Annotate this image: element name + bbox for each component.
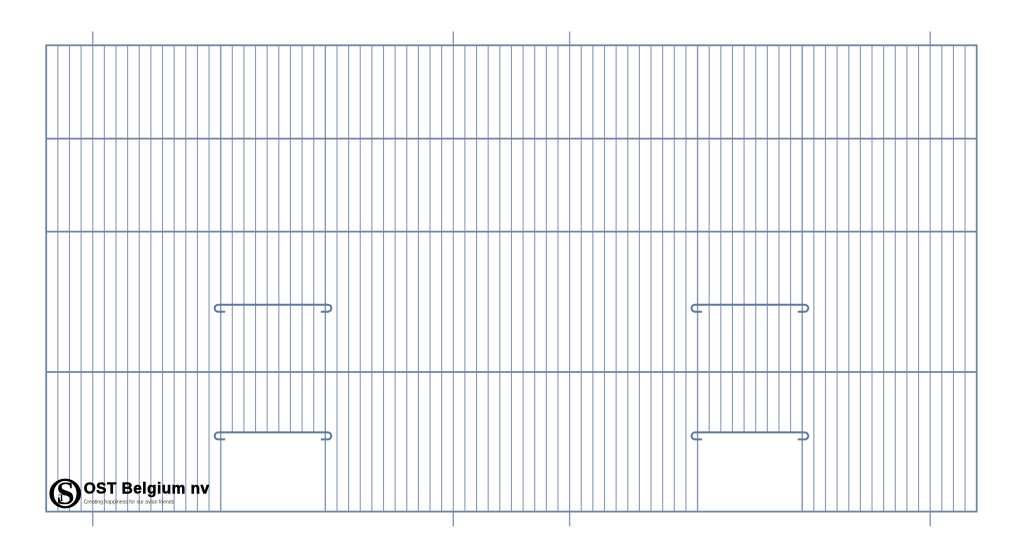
svg-text:OST Belgium nv: OST Belgium nv (84, 481, 210, 498)
svg-text:Creating happiness for our avi: Creating happiness for our avian friends (84, 499, 175, 505)
svg-text:T: T (58, 493, 64, 503)
